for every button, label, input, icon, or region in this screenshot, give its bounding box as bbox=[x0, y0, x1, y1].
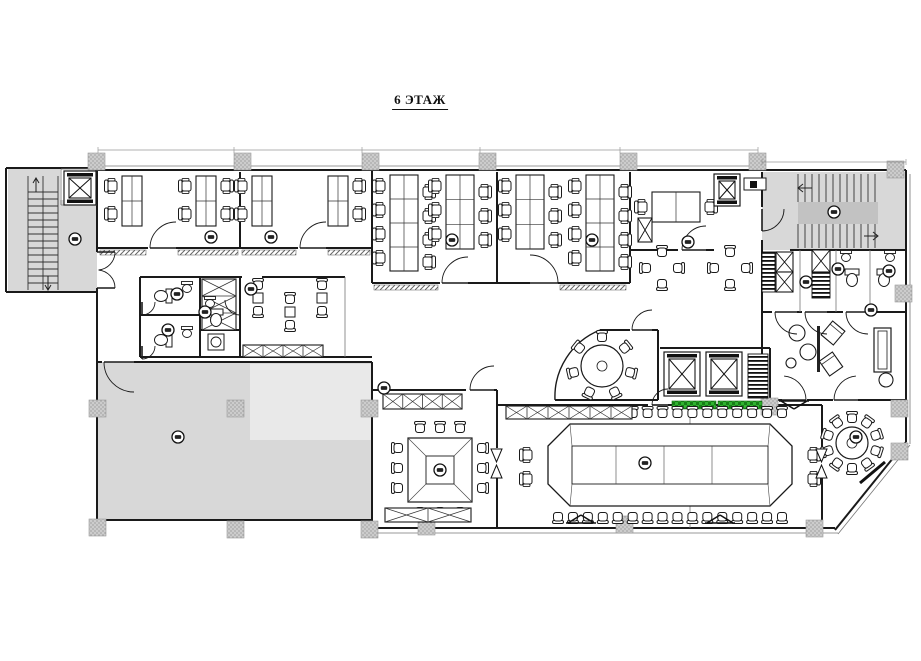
sill-hatch bbox=[328, 250, 370, 255]
door-arc bbox=[530, 255, 558, 283]
task-chair bbox=[619, 232, 632, 247]
lounge-chair bbox=[708, 263, 719, 274]
room-number-marker bbox=[850, 431, 862, 443]
task-chair bbox=[423, 254, 436, 269]
room-number-marker bbox=[172, 431, 184, 443]
task-chair bbox=[179, 178, 192, 193]
task-chair bbox=[635, 199, 648, 214]
task-chair bbox=[179, 206, 192, 221]
room-number-marker bbox=[378, 382, 390, 394]
task-chair bbox=[569, 250, 582, 265]
task-chair bbox=[429, 178, 442, 193]
floor-plan-drawing bbox=[0, 0, 921, 661]
meeting-chair bbox=[435, 422, 446, 433]
meeting-chair bbox=[478, 483, 489, 494]
round-table-chair bbox=[860, 456, 875, 471]
task-chair bbox=[619, 254, 632, 269]
door-arc bbox=[142, 302, 155, 315]
task-chair bbox=[353, 178, 366, 193]
cafe-chair bbox=[285, 321, 296, 332]
elevator-sill bbox=[717, 201, 737, 205]
task-chair bbox=[619, 208, 632, 223]
conference-chair bbox=[672, 407, 683, 418]
meeting-chair bbox=[455, 422, 466, 433]
conference-chair bbox=[520, 447, 533, 462]
conference-chair bbox=[553, 513, 564, 524]
door-arc bbox=[784, 376, 806, 400]
conference-table bbox=[548, 424, 792, 506]
conference-chair bbox=[657, 407, 668, 418]
door-arc bbox=[300, 222, 326, 248]
room-number-marker bbox=[800, 276, 812, 288]
room-number-marker bbox=[832, 263, 844, 275]
conference-chair bbox=[672, 513, 683, 524]
room-number-marker bbox=[682, 236, 694, 248]
meeting-chair bbox=[478, 443, 489, 454]
conference-chair bbox=[687, 513, 698, 524]
round-table-chair bbox=[571, 340, 586, 355]
round-table-chair bbox=[829, 456, 844, 471]
structural-column bbox=[895, 285, 912, 302]
task-chair bbox=[429, 226, 442, 241]
floor-plan-page: 6 ЭТАЖ bbox=[0, 0, 921, 661]
task-chair bbox=[549, 184, 562, 199]
structural-column bbox=[89, 400, 106, 417]
cafe-table bbox=[317, 293, 327, 303]
task-chair bbox=[429, 202, 442, 217]
conference-chair bbox=[642, 407, 653, 418]
elevator-sill bbox=[67, 200, 93, 204]
lounge-chair bbox=[742, 263, 753, 274]
structural-column bbox=[891, 400, 908, 417]
conference-chair bbox=[642, 513, 653, 524]
window-sills bbox=[100, 250, 626, 290]
task-chair bbox=[499, 226, 512, 241]
round-table-chair bbox=[582, 386, 597, 401]
door-arc bbox=[150, 222, 176, 248]
sink bbox=[182, 327, 193, 338]
task-chair bbox=[549, 208, 562, 223]
lounge-chair bbox=[657, 246, 668, 257]
structural-column bbox=[806, 520, 823, 537]
sill-hatch bbox=[242, 250, 296, 255]
toilet bbox=[845, 269, 859, 287]
task-chair bbox=[569, 178, 582, 193]
conference-chair bbox=[702, 513, 713, 524]
lobby-left-floor bbox=[58, 200, 97, 292]
dimension-lines bbox=[98, 147, 906, 165]
round-table-chair bbox=[618, 340, 633, 355]
cafe-chair bbox=[285, 293, 296, 304]
task-chair bbox=[479, 232, 492, 247]
cafe-table bbox=[285, 307, 295, 317]
task-chair bbox=[105, 206, 118, 221]
conference-chair bbox=[657, 513, 668, 524]
meeting-chair bbox=[478, 463, 489, 474]
task-chair bbox=[569, 202, 582, 217]
task-chair bbox=[221, 206, 234, 221]
round-table-chair bbox=[870, 444, 884, 458]
conference-chair bbox=[732, 513, 743, 524]
structural-column bbox=[887, 161, 904, 178]
armchair bbox=[819, 352, 842, 376]
meeting-chair bbox=[392, 443, 403, 454]
structural-column bbox=[620, 153, 637, 170]
meeting-chair bbox=[415, 422, 426, 433]
conference-chair bbox=[747, 407, 758, 418]
elevator-sill bbox=[717, 176, 737, 180]
task-chair bbox=[353, 206, 366, 221]
task-chair bbox=[373, 178, 386, 193]
conference-chair bbox=[777, 513, 788, 524]
room-number-marker bbox=[883, 265, 895, 277]
round-table-chair bbox=[847, 412, 858, 423]
room-number-marker bbox=[586, 234, 598, 246]
pouf bbox=[879, 373, 893, 387]
sill-hatch bbox=[178, 250, 238, 255]
structural-column bbox=[479, 153, 496, 170]
sill-hatch bbox=[374, 285, 438, 290]
round-table-chair bbox=[566, 366, 579, 379]
room-number-marker bbox=[828, 206, 840, 218]
meeting-chair bbox=[392, 483, 403, 494]
conference-chair bbox=[597, 513, 608, 524]
elevator-sill bbox=[667, 391, 697, 395]
task-chair bbox=[479, 184, 492, 199]
pouf bbox=[786, 358, 796, 368]
round-table-center bbox=[597, 361, 607, 371]
door-arc bbox=[99, 270, 115, 288]
task-chair bbox=[235, 206, 248, 221]
door-arc bbox=[834, 376, 856, 400]
room-number-marker bbox=[639, 457, 651, 469]
round-table-chair bbox=[625, 366, 638, 379]
structural-column bbox=[234, 153, 251, 170]
round-table-chair bbox=[829, 414, 844, 429]
lounge-chair bbox=[725, 246, 736, 257]
elevator-sill bbox=[709, 354, 739, 358]
vent-grille bbox=[748, 354, 768, 398]
conference-chair bbox=[777, 407, 788, 418]
door-arc bbox=[805, 312, 827, 334]
room-number-marker bbox=[69, 233, 81, 245]
task-chair bbox=[499, 202, 512, 217]
task-chair bbox=[373, 250, 386, 265]
conference-chair bbox=[702, 407, 713, 418]
hall-floor-light bbox=[250, 364, 372, 440]
structural-column bbox=[361, 400, 378, 417]
room-number-marker bbox=[199, 306, 211, 318]
task-chair bbox=[373, 202, 386, 217]
conference-chair bbox=[627, 513, 638, 524]
door-arc bbox=[442, 257, 468, 283]
structural-column bbox=[361, 521, 378, 538]
wall-unit-symbol bbox=[816, 449, 827, 478]
task-chair bbox=[221, 178, 234, 193]
lounge-chair bbox=[725, 280, 736, 291]
structural-column bbox=[749, 153, 766, 170]
room-number-marker bbox=[434, 464, 446, 476]
washing-machine bbox=[208, 334, 224, 350]
cafe-chair bbox=[253, 307, 264, 318]
cafe-chair bbox=[317, 279, 328, 290]
room-number-marker bbox=[245, 283, 257, 295]
vent-grille bbox=[762, 252, 775, 292]
structural-column bbox=[89, 519, 106, 536]
elevator-sill bbox=[709, 391, 739, 395]
round-table-chair bbox=[608, 386, 623, 401]
structural-column bbox=[227, 521, 244, 538]
conference-chair bbox=[762, 407, 773, 418]
room-number-marker bbox=[162, 324, 174, 336]
conference-chair bbox=[520, 471, 533, 486]
task-chair bbox=[499, 178, 512, 193]
vent-grille bbox=[812, 272, 830, 298]
task-chair bbox=[479, 208, 492, 223]
task-chair bbox=[373, 226, 386, 241]
conference-chair bbox=[747, 513, 758, 524]
room-number-marker bbox=[265, 231, 277, 243]
room-number-marker bbox=[171, 288, 183, 300]
conference-chair bbox=[687, 407, 698, 418]
lounge-chair bbox=[674, 263, 685, 274]
lounge-chair bbox=[640, 263, 651, 274]
door-arc bbox=[846, 312, 868, 334]
round-table-chair bbox=[597, 331, 608, 342]
door-arc bbox=[632, 310, 652, 330]
elevator-sill bbox=[667, 354, 697, 358]
structural-column bbox=[88, 153, 105, 170]
conference-chair bbox=[612, 513, 623, 524]
round-table-chair bbox=[860, 414, 875, 429]
task-chair bbox=[569, 226, 582, 241]
lounge-chair bbox=[657, 280, 668, 291]
elevator-sill bbox=[67, 173, 93, 177]
door-arc bbox=[470, 366, 494, 390]
conference-chair bbox=[717, 407, 728, 418]
sofa bbox=[874, 328, 891, 372]
sink bbox=[182, 282, 193, 293]
task-chair bbox=[549, 232, 562, 247]
task-chair bbox=[235, 178, 248, 193]
structural-column bbox=[362, 153, 379, 170]
sill-hatch bbox=[560, 285, 626, 290]
room-number-marker bbox=[446, 234, 458, 246]
pouf bbox=[800, 344, 816, 360]
round-table-chair bbox=[847, 464, 858, 475]
task-chair bbox=[619, 184, 632, 199]
toilet bbox=[155, 289, 173, 303]
room-number-marker bbox=[205, 231, 217, 243]
structural-column bbox=[227, 400, 244, 417]
stairwell-left-floor bbox=[8, 168, 60, 292]
wall-unit-symbol bbox=[491, 449, 502, 478]
round-table-chair bbox=[870, 428, 884, 442]
conference-chair bbox=[732, 407, 743, 418]
armchair bbox=[821, 321, 845, 345]
task-chair bbox=[105, 178, 118, 193]
meeting-chair bbox=[392, 463, 403, 474]
conference-chair bbox=[762, 513, 773, 524]
cafe-chair bbox=[317, 307, 328, 318]
sink bbox=[885, 251, 896, 262]
service-box-unit bbox=[750, 181, 757, 188]
structural-column bbox=[891, 443, 908, 460]
sink bbox=[841, 251, 852, 262]
room-number-marker bbox=[865, 304, 877, 316]
